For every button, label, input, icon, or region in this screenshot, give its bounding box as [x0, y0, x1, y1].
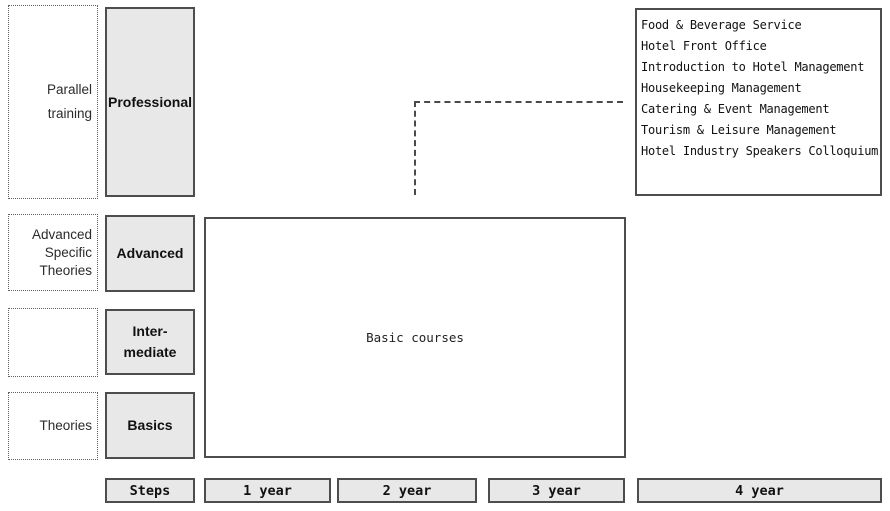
step-advanced-box: Advanced — [105, 215, 195, 292]
connector-vertical-dashed-line — [414, 101, 416, 195]
timeline-year2-label: 2 year — [383, 483, 432, 499]
timeline-year4-label: 4 year — [735, 483, 784, 499]
timeline-year4-box: 4 year — [637, 478, 882, 503]
course-item: Introduction to Hotel Management — [641, 57, 877, 78]
advanced-specific-theories-box: Advanced Specific Theories — [8, 214, 98, 291]
empty-dotted-box — [8, 308, 98, 377]
step-intermediate-label-line2: mediate — [124, 342, 177, 363]
basic-courses-label: Basic courses — [366, 330, 464, 345]
curriculum-diagram: Parallel training Advanced Specific Theo… — [0, 0, 890, 511]
step-professional-box: Professional — [105, 7, 195, 197]
ast-label-line1: Advanced — [32, 226, 92, 244]
ast-label-line2: Specific — [45, 244, 92, 262]
course-item: Hotel Front Office — [641, 36, 877, 57]
timeline-steps-box: Steps — [105, 478, 195, 503]
theories-box: Theories — [8, 392, 98, 460]
parallel-training-box: Parallel training — [8, 5, 98, 199]
step-professional-label: Professional — [108, 92, 192, 113]
timeline-year3-label: 3 year — [532, 483, 581, 499]
timeline-year2-box: 2 year — [337, 478, 477, 503]
ast-label-line3: Theories — [39, 262, 92, 280]
connector-horizontal-dashed-line — [414, 101, 623, 103]
timeline-year3-box: 3 year — [488, 478, 625, 503]
timeline-steps-label: Steps — [130, 483, 171, 499]
parallel-training-label-line1: Parallel — [47, 78, 92, 102]
step-advanced-label: Advanced — [117, 243, 184, 264]
step-basics-label: Basics — [127, 415, 172, 436]
step-intermediate-box: Inter- mediate — [105, 309, 195, 375]
course-item: Hotel Industry Speakers Colloquium — [641, 141, 877, 162]
course-item: Food & Beverage Service — [641, 15, 877, 36]
timeline-year1-label: 1 year — [243, 483, 292, 499]
parallel-training-label-line2: training — [48, 102, 92, 126]
course-item: Housekeeping Management — [641, 78, 877, 99]
basic-courses-box: Basic courses — [204, 217, 626, 458]
course-item: Catering & Event Management — [641, 99, 877, 120]
theories-label: Theories — [39, 417, 92, 435]
step-basics-box: Basics — [105, 392, 195, 459]
course-item: Tourism & Leisure Management — [641, 120, 877, 141]
timeline-year1-box: 1 year — [204, 478, 331, 503]
professional-courses-box: Food & Beverage Service Hotel Front Offi… — [635, 8, 882, 196]
step-intermediate-label-line1: Inter- — [133, 321, 168, 342]
